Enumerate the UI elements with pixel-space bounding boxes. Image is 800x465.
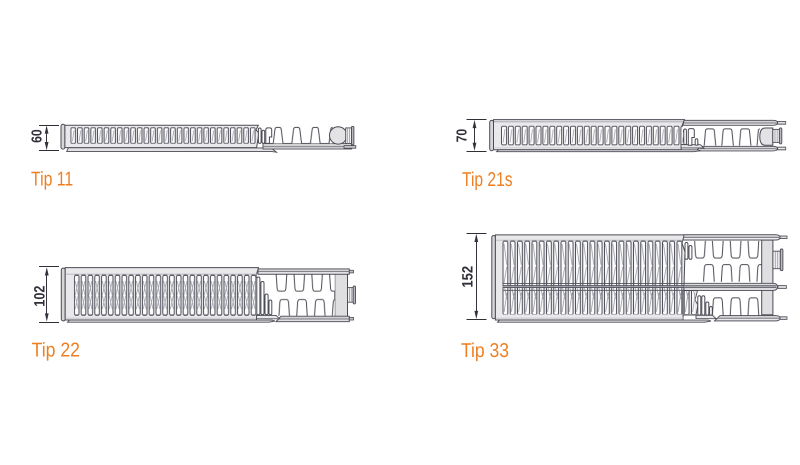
svg-text:70: 70 xyxy=(455,129,471,143)
svg-text:Tip 11: Tip 11 xyxy=(31,169,73,191)
svg-text:102: 102 xyxy=(31,286,48,307)
svg-text:60: 60 xyxy=(30,129,46,143)
svg-text:Tip 21s: Tip 21s xyxy=(462,169,513,191)
svg-text:Tip 22: Tip 22 xyxy=(32,339,80,361)
svg-text:Tip 33: Tip 33 xyxy=(461,340,509,362)
svg-text:152: 152 xyxy=(459,266,476,288)
